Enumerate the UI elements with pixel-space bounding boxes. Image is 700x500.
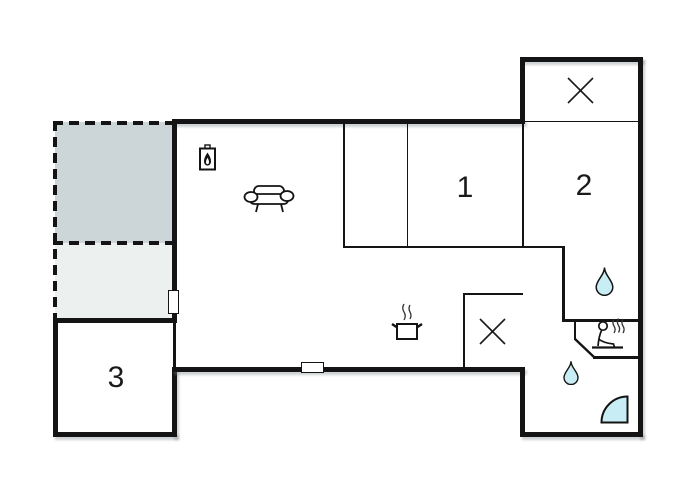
door-marker-west [168, 290, 179, 314]
wall-west-lower [172, 367, 177, 437]
wall-toilet-top [463, 293, 523, 295]
room-3-label: 3 [108, 363, 125, 393]
terrace-dashed-border-left [53, 121, 57, 319]
wall-toilet-left [463, 293, 465, 367]
sauna-icon [590, 316, 626, 354]
wall-divider-room1-room2 [522, 124, 524, 248]
wall-room3-left [53, 318, 58, 437]
water-drop-icon-wc [595, 266, 614, 296]
wall-closet-left [343, 124, 345, 246]
cross-window-icon [566, 76, 595, 105]
door-marker-south [301, 362, 324, 373]
floor-plan-canvas: 1 2 3 [0, 0, 700, 500]
wall-bath-left [520, 367, 525, 437]
wall-south [172, 367, 525, 372]
wall-annex-floor-line [525, 121, 638, 123]
cross-window-icon-toilet [478, 317, 507, 346]
wall-room3-bottom [53, 432, 177, 437]
wall-rooms-south-line [343, 246, 564, 248]
wall-annex-top [520, 57, 643, 62]
wall-main-top [172, 119, 525, 124]
wall-sauna-bottom [593, 356, 638, 359]
wall-bath-bottom [520, 432, 643, 437]
wall-west-mid [173, 322, 176, 367]
wall-outer-right [638, 57, 643, 437]
water-drop-icon-bath [563, 360, 579, 385]
sofa-icon [243, 183, 295, 214]
shower-quarter-icon [600, 395, 629, 424]
wall-wc-left [562, 246, 565, 321]
fireplace-icon [198, 144, 217, 171]
room-2-label: 2 [576, 171, 593, 201]
room-1-label: 1 [457, 173, 474, 203]
terrace-dashed-border-top [53, 121, 174, 125]
wall-annex-left [520, 57, 525, 124]
terrace-lower [55, 243, 173, 319]
stove-pot-icon [391, 302, 423, 342]
wall-room3-top [53, 318, 177, 323]
wall-closet-right [407, 124, 409, 246]
terrace-upper [55, 122, 173, 243]
terrace-dashed-divider [53, 241, 174, 245]
